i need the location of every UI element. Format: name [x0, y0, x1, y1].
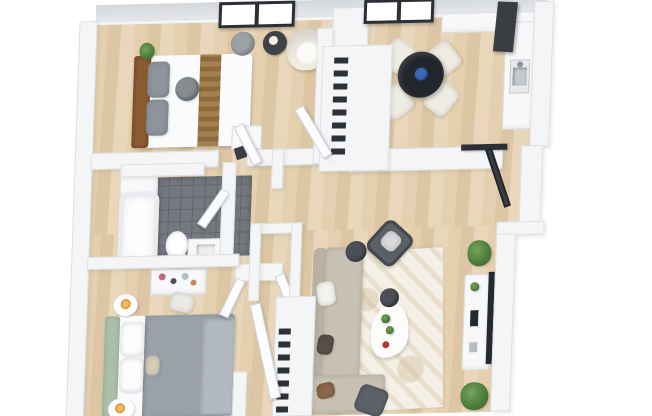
bed-2-throw — [200, 318, 235, 415]
window-pane — [367, 2, 398, 21]
window-2 — [364, 0, 435, 24]
window-pane — [221, 4, 255, 25]
console-decor-dark — [470, 310, 479, 326]
bed-2-pillow — [119, 358, 144, 393]
sofa-seat — [321, 247, 364, 382]
bed-2-pillow-tan — [145, 355, 160, 375]
entry-side-wall — [518, 145, 543, 229]
bathtub — [117, 191, 160, 264]
floor-plan-image — [0, 0, 652, 416]
sofa-pillow-white — [316, 280, 337, 307]
bed-1-pillow — [146, 99, 169, 135]
sink-basin — [512, 67, 527, 85]
bathroom-north-wall — [120, 162, 205, 177]
bed-1-pillow — [147, 61, 170, 97]
apartment-plan — [0, 0, 652, 416]
bed-2-pillow — [120, 322, 145, 357]
hall-wall-stub — [271, 149, 284, 189]
window-pane — [258, 4, 292, 25]
bed-1-throw-runner — [197, 54, 221, 146]
outer-right-wall-kitchen — [529, 1, 554, 147]
console-decor-small — [469, 342, 477, 352]
bedroom-2-east-wall-stub — [232, 371, 248, 416]
window-1 — [218, 1, 295, 29]
window-pane — [401, 1, 432, 20]
